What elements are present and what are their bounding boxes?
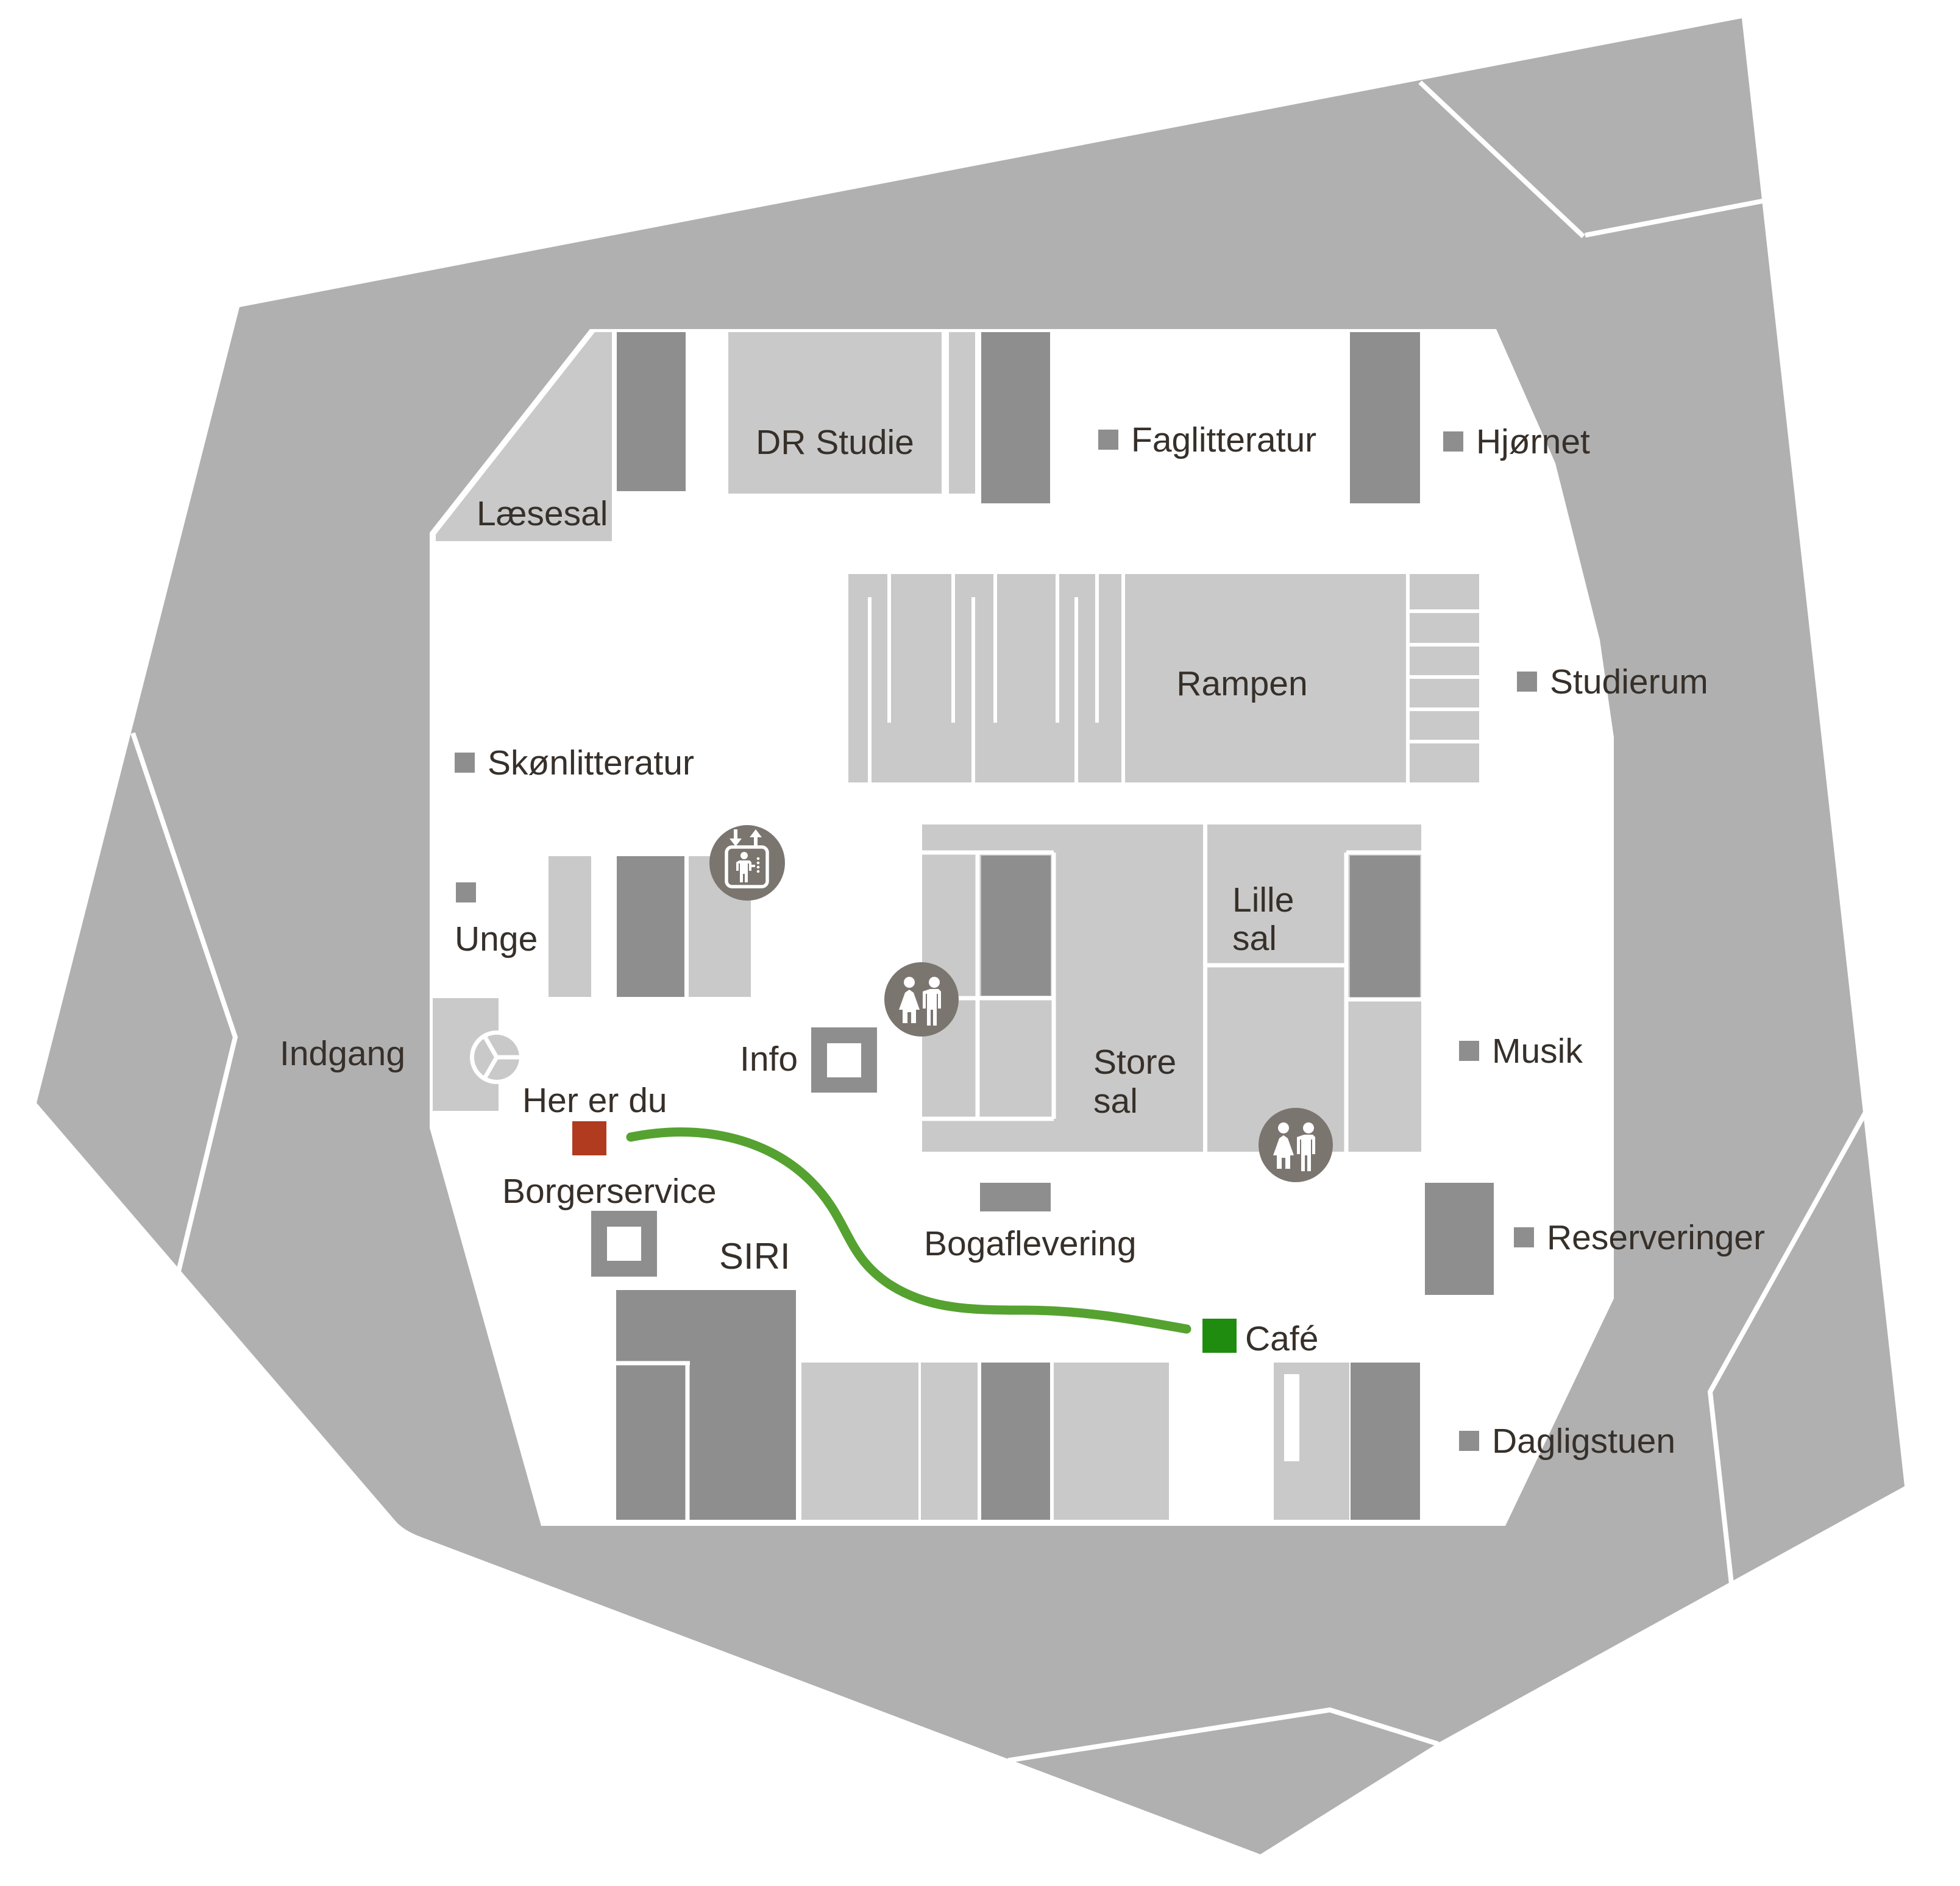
svg-text:sal: sal [1232,919,1277,958]
svg-text:Faglitteratur: Faglitteratur [1131,420,1316,459]
svg-text:Hjørnet: Hjørnet [1476,422,1590,461]
svg-text:SIRI: SIRI [719,1236,790,1277]
svg-text:DR Studie: DR Studie [756,423,914,462]
svg-text:Her er du: Her er du [522,1081,667,1120]
svg-text:Store: Store [1093,1043,1176,1082]
svg-text:Café: Café [1245,1319,1318,1358]
svg-text:sal: sal [1093,1082,1138,1121]
svg-text:Læsesal: Læsesal [477,494,608,533]
svg-text:Rampen: Rampen [1176,664,1307,703]
svg-text:Unge: Unge [455,920,538,959]
svg-text:Studierum: Studierum [1550,662,1708,701]
svg-text:Lille: Lille [1232,881,1294,920]
svg-text:Indgang: Indgang [280,1034,405,1073]
svg-text:Reserveringer: Reserveringer [1547,1218,1765,1257]
svg-text:Musik: Musik [1492,1032,1583,1071]
svg-text:Skønlitteratur: Skønlitteratur [488,743,694,782]
svg-text:Bogaflevering: Bogaflevering [924,1224,1137,1263]
svg-text:Borgerservice: Borgerservice [502,1172,717,1211]
svg-text:Info: Info [740,1040,798,1079]
svg-text:Dagligstuen: Dagligstuen [1492,1422,1675,1461]
